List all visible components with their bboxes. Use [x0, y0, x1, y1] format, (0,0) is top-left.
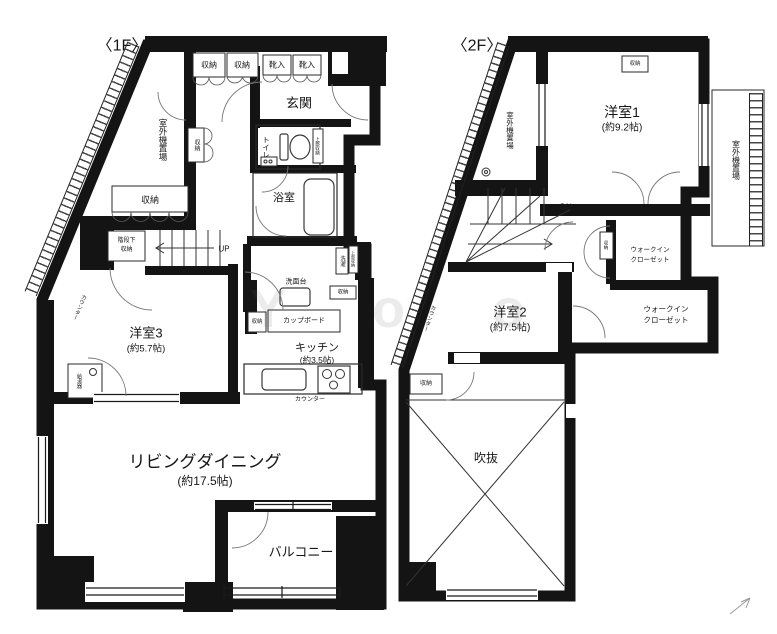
- f2-stair-storage-label: 収納: [603, 239, 609, 251]
- f1-hall-storage-label: 収納: [193, 139, 200, 152]
- toilet-tank: [280, 134, 288, 160]
- f1-room3-label: 洋室3: [129, 326, 162, 341]
- f1-entrance-label: 玄関: [286, 96, 312, 111]
- f1-outdoor-unit-label: 室外機置場: [158, 118, 168, 162]
- f2-right-hatch: [749, 93, 763, 246]
- f1-living-size: (約17.5帖): [177, 473, 232, 488]
- floor-1f: 〈1F〉 収納 収納 靴入 靴入 玄関 室外機置場 トイレ 上部収納 収納 浴室…: [35, 36, 387, 612]
- bathtub: [304, 179, 334, 235]
- toilet-bowl: [290, 135, 310, 159]
- f1-wall-notch: [332, 52, 348, 74]
- f1-toilet-upper-label: 上部収納: [315, 136, 321, 157]
- f2-room1-size: (約9.2帖): [602, 121, 643, 134]
- f1-water-heater-label: 給湯器: [76, 373, 82, 390]
- f2-outdoor-right-label: 室外機置場: [732, 139, 741, 181]
- f2-hall-door-gap: [454, 353, 480, 363]
- floor-plan-canvas: 〈1F〉 収納 収納 靴入 靴入 玄関 室外機置場 トイレ 上部収納 収納 浴室…: [0, 0, 777, 634]
- kitchen-sink: [262, 369, 306, 390]
- f2-wic1-label-2: クローゼット: [631, 255, 670, 264]
- north-arrow-icon: [730, 598, 750, 614]
- f1-storage-a-label: 収納: [337, 288, 349, 296]
- f2-outdoor-left-label: 室外機置場: [505, 110, 514, 150]
- f1-shoe-b-label: 靴入: [299, 60, 315, 70]
- f1-closet-b-label: 収納: [234, 60, 250, 70]
- f1-balcony-label: バルコニー: [269, 545, 334, 560]
- f1-under-stairs-label-2: 収納: [120, 245, 132, 253]
- f1-washstand-label: 洗面台: [286, 277, 307, 286]
- f2-storage-bottom-label: 収納: [420, 379, 432, 387]
- f2-dn-label: DN: [560, 203, 572, 212]
- f1-shoe-a-label: 靴入: [269, 60, 285, 70]
- f1-room3-size: (約5.7帖): [127, 343, 166, 355]
- f1-closet-a-label: 収納: [201, 60, 217, 70]
- f1-kitchen-size: (約3.5帖): [300, 355, 335, 365]
- f2-room2-size: (約7.5帖): [490, 321, 531, 334]
- f1-storage-b-label: 収納: [251, 317, 263, 325]
- f1-cupboard-label: カップボード: [283, 317, 325, 325]
- washbasin: [280, 288, 310, 306]
- f1-storage-long-label: 収納: [141, 194, 159, 205]
- f2-room1-label: 洋室1: [604, 104, 640, 120]
- f2-room2-label: 洋室2: [493, 305, 526, 320]
- f2-wic2-label-1: ウォークイン: [644, 305, 689, 314]
- f1-under-stairs-label-1: 階段下: [117, 236, 135, 244]
- f1-counter-label: カウンター: [295, 395, 325, 403]
- f1-laundry-upper-label: 上部収納: [351, 250, 356, 268]
- f1-toilet-label: トイレ: [262, 136, 271, 159]
- f2-room2-door-gap: [546, 263, 572, 272]
- f1-laundry-label: 洗濯: [339, 254, 346, 268]
- f2-wic1-label-1: ウォークイン: [631, 246, 670, 254]
- f2-top-storage-label: 収納: [629, 59, 641, 67]
- f1-kitchen-label: キッチン: [295, 341, 339, 354]
- f1-bath-label: 浴室: [273, 190, 295, 204]
- f2-void-label: 吹抜: [474, 451, 498, 465]
- floor-2f: 〈2F〉 室外機置場 室外機置場 収納 洋室1 (約9.2帖) DN 収納 ウォ…: [402, 36, 764, 600]
- f1-up-label: UP: [218, 245, 229, 254]
- f2-wall-notch: [566, 404, 578, 418]
- f2-wic2-label-2: クローゼット: [644, 315, 689, 325]
- f1-living-label: リビングダイニング: [129, 453, 282, 472]
